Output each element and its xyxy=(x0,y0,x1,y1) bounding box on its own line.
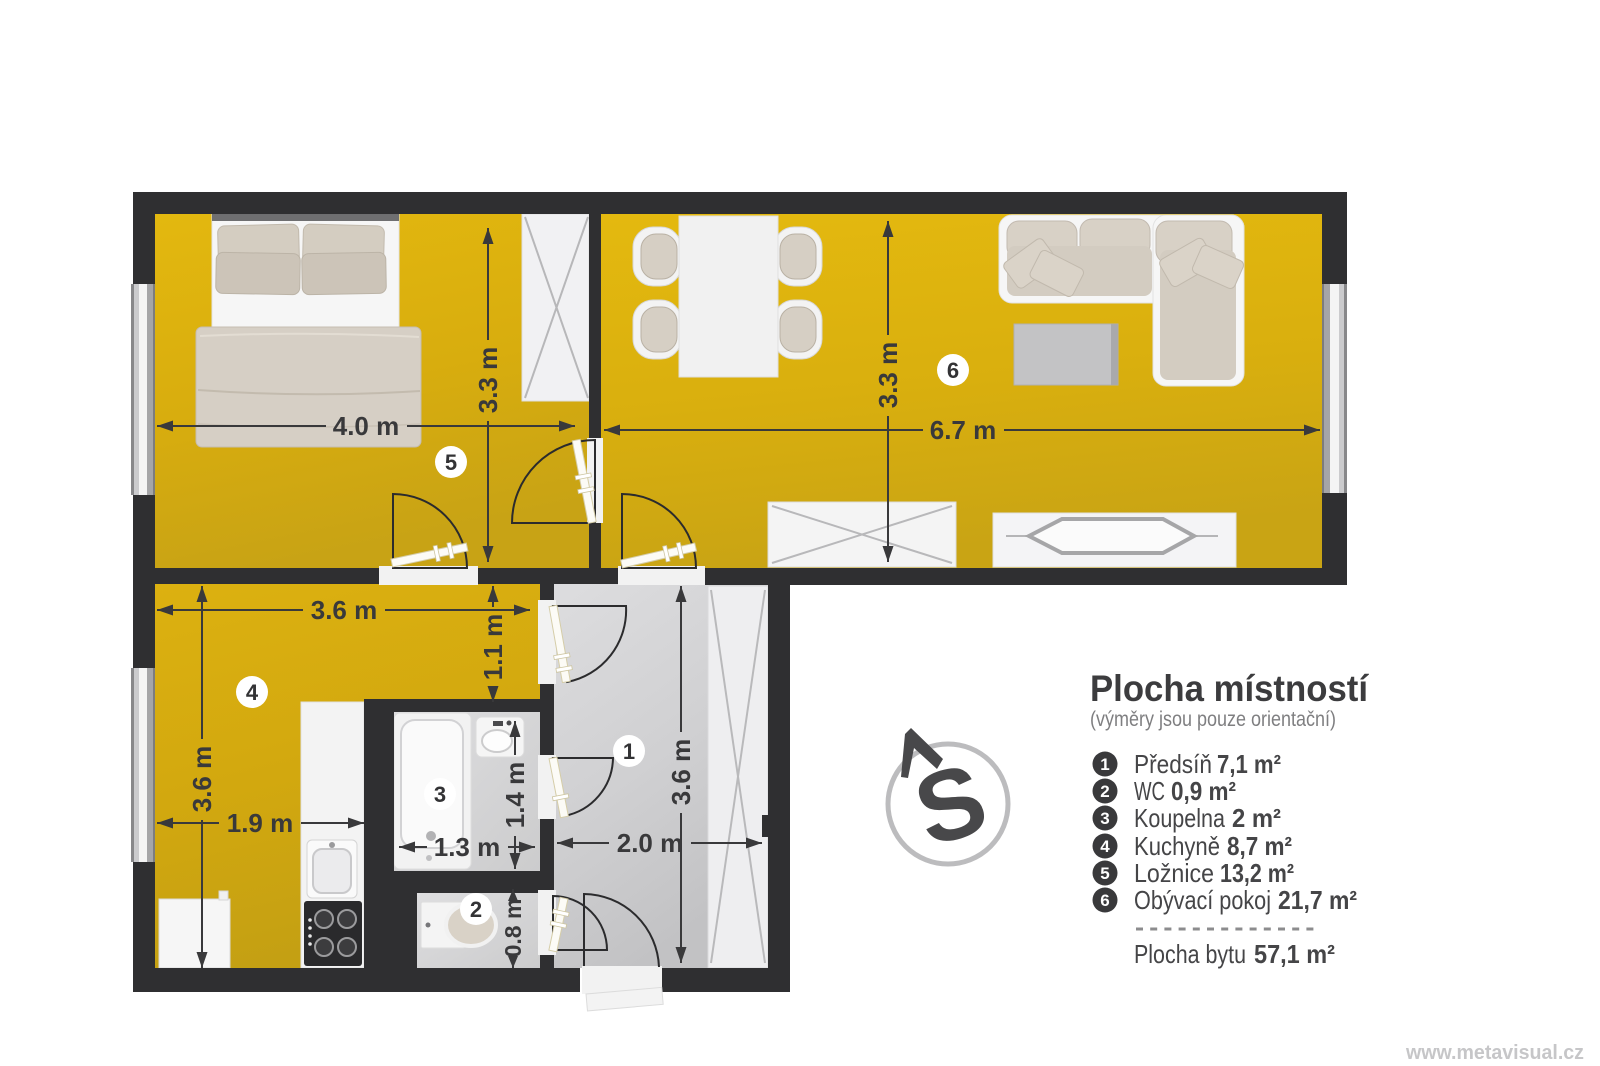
svg-text:1.4 m: 1.4 m xyxy=(500,762,530,829)
svg-text:4.0 m: 4.0 m xyxy=(333,411,400,441)
svg-text:7,1 m²: 7,1 m² xyxy=(1217,749,1281,779)
svg-text:3.6 m: 3.6 m xyxy=(187,746,217,813)
svg-text:8,7 m²: 8,7 m² xyxy=(1227,831,1292,861)
svg-text:5: 5 xyxy=(445,450,457,475)
svg-text:2.0 m: 2.0 m xyxy=(617,828,684,858)
svg-text:6.7 m: 6.7 m xyxy=(930,415,997,445)
svg-text:4: 4 xyxy=(246,680,259,705)
svg-text:3.3 m: 3.3 m xyxy=(473,347,503,414)
svg-text:3.3 m: 3.3 m xyxy=(873,342,903,409)
svg-text:3.6 m: 3.6 m xyxy=(311,595,378,625)
svg-text:3: 3 xyxy=(1100,809,1109,828)
svg-text:21,7 m²: 21,7 m² xyxy=(1278,885,1357,915)
svg-text:3.6 m: 3.6 m xyxy=(666,739,696,806)
svg-text:0.8 m: 0.8 m xyxy=(500,899,526,958)
svg-text:Koupelna: Koupelna xyxy=(1134,803,1225,833)
svg-text:6: 6 xyxy=(1100,891,1109,910)
svg-text:Obývací pokoj: Obývací pokoj xyxy=(1134,885,1271,915)
svg-text:0,9 m²: 0,9 m² xyxy=(1171,776,1236,806)
svg-text:6: 6 xyxy=(947,358,959,383)
svg-text:Plocha bytu: Plocha bytu xyxy=(1134,939,1246,969)
svg-text:13,2 m²: 13,2 m² xyxy=(1220,858,1294,888)
svg-text:57,1 m²: 57,1 m² xyxy=(1254,939,1335,969)
svg-text:1.1 m: 1.1 m xyxy=(478,614,508,681)
svg-text:Kuchyně: Kuchyně xyxy=(1134,831,1220,861)
svg-text:3: 3 xyxy=(434,782,446,807)
svg-text:Ložnice: Ložnice xyxy=(1134,858,1214,888)
svg-text:4: 4 xyxy=(1100,837,1110,856)
svg-text:1.3 m: 1.3 m xyxy=(434,832,501,862)
svg-text:www.metavisual.cz: www.metavisual.cz xyxy=(1405,1042,1584,1064)
svg-text:WC: WC xyxy=(1134,776,1165,806)
svg-text:5: 5 xyxy=(1100,864,1109,883)
svg-text:2: 2 xyxy=(1100,782,1109,801)
svg-text:(výměry jsou pouze orientační): (výměry jsou pouze orientační) xyxy=(1090,708,1336,731)
svg-text:Předsíň: Předsíň xyxy=(1134,749,1212,779)
svg-text:1.9 m: 1.9 m xyxy=(227,808,294,838)
svg-text:2: 2 xyxy=(470,897,482,922)
svg-text:1: 1 xyxy=(1100,755,1109,774)
svg-text:1: 1 xyxy=(623,739,635,764)
svg-text:Plocha místností: Plocha místností xyxy=(1090,668,1370,709)
svg-text:2 m²: 2 m² xyxy=(1232,803,1281,833)
